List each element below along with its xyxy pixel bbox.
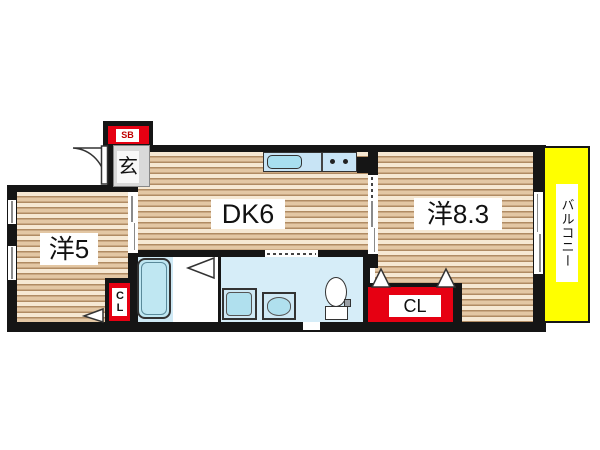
western-room-5-label: 洋5 [40,233,98,265]
vent-bottom-wall [302,322,321,330]
wall-top [148,145,546,152]
vanity-basin [267,297,291,316]
sliding-door-dk-west8 [368,175,378,254]
washing-machine-inner [226,292,252,316]
wall-bath-partition [218,257,221,322]
toilet-base [325,306,348,320]
dining-kitchen-label: DK6 [211,199,285,229]
entrance-door-swing-icon [73,148,105,182]
entrance-label: 玄 [117,153,139,181]
kitchen-counter-divider [321,153,323,171]
western-room-8-3-label: 洋8.3 [414,198,502,230]
bathroom-door-area [173,257,218,322]
shoe-box-label: SB [116,129,139,142]
closet-west8-label: CL [389,295,441,317]
window-west5-left-1 [8,200,16,224]
window-west5-left-2 [8,246,16,280]
floorplan: バルコニー 玄 SB CL CL DK6 洋8.3 洋5 [0,0,600,450]
wall-washroom-top [133,250,363,257]
stove-burner-icon [343,159,348,164]
wall-outer-bottom [7,322,546,332]
kitchen-sink [267,155,302,169]
sliding-door-balcony [534,192,543,274]
stove-burner-icon [330,159,335,164]
closet-west5-label: CL [112,288,127,316]
wall-kitchen-corner [357,157,378,173]
balcony-label: バルコニー [556,184,578,282]
sliding-door-washroom [265,250,318,257]
sliding-door-west5 [128,192,138,253]
bathtub [137,258,171,319]
toilet-tank-button [344,299,351,307]
